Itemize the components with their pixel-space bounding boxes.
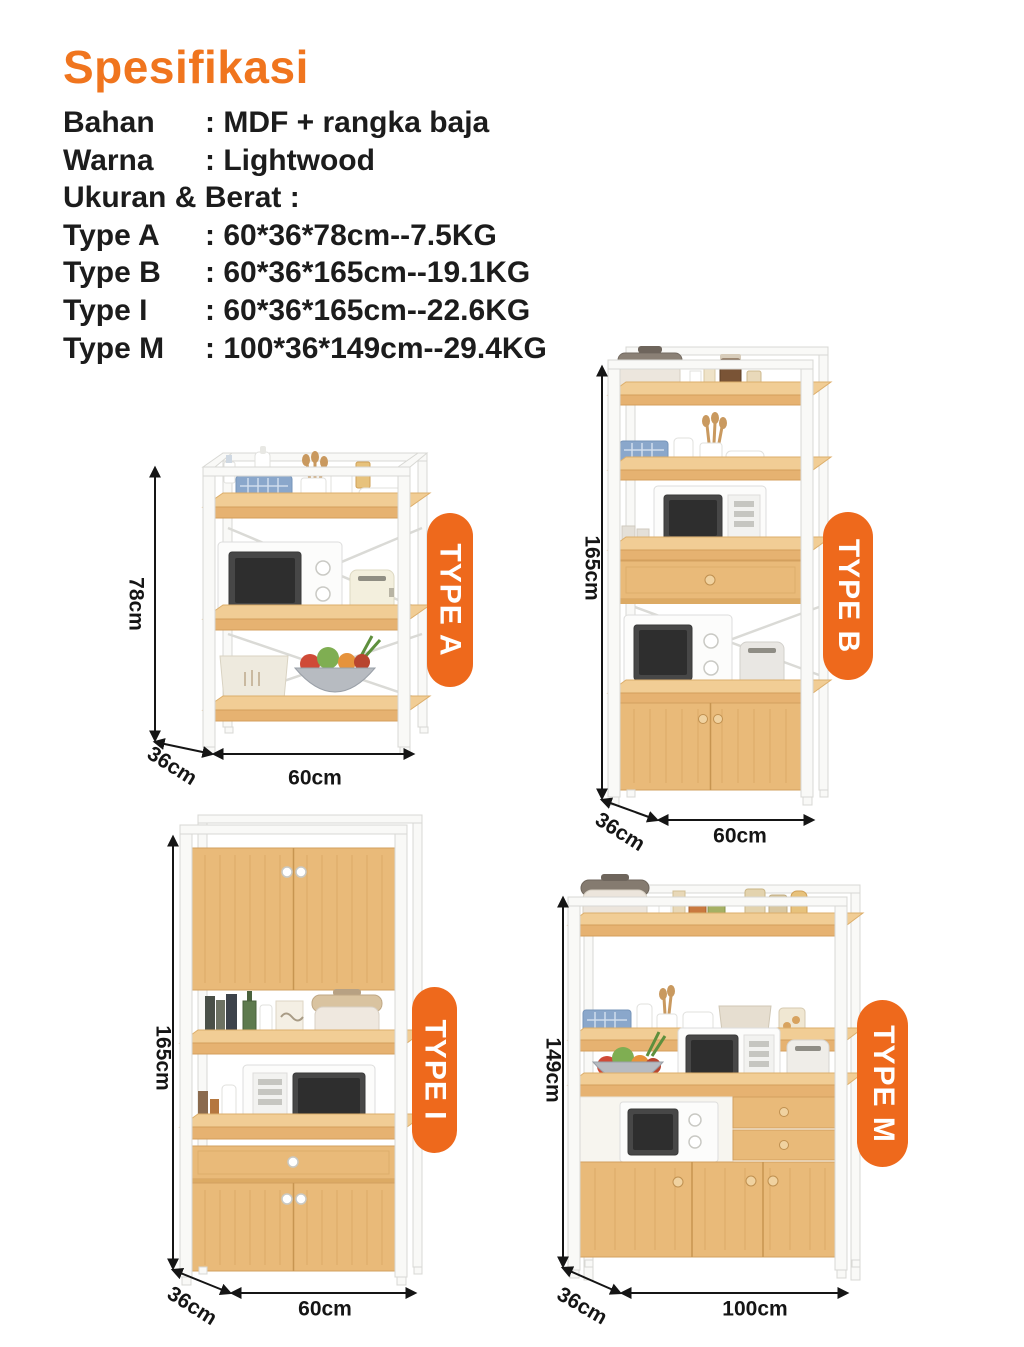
type-a-figure: 78cm 36cm 60cm TYPE A — [100, 420, 520, 800]
depth-dimension-label: 36cm — [553, 1283, 611, 1330]
type-b-figure: 165cm 36cm 60cm TYPE B — [560, 330, 1000, 860]
type-m-illustration: 149cm 36cm 100cm — [540, 860, 1024, 1347]
spec-infographic: Spesifikasi Bahan : MDF + rangka baja Wa… — [0, 0, 1024, 1347]
height-dimension-label: 149cm — [542, 1037, 565, 1102]
height-dimension-label: 165cm — [581, 535, 604, 600]
spec-label: Bahan — [63, 104, 205, 142]
type-b-badge-label: TYPE B — [831, 539, 865, 653]
spec-value: : MDF + rangka baja — [205, 104, 489, 142]
spec-row-type-i: Type I : 60*36*165cm--22.6KG — [63, 292, 547, 330]
type-a-badge-label: TYPE A — [433, 543, 467, 656]
depth-dimension-label: 36cm — [163, 1282, 221, 1330]
page-title: Spesifikasi — [63, 44, 309, 90]
spec-row-ukuran-berat: Ukuran & Berat : — [63, 179, 547, 217]
rack-tall-cabinet — [608, 346, 831, 805]
spec-label: Type M — [63, 330, 205, 368]
spec-value: : 60*36*165cm--22.6KG — [205, 292, 530, 330]
depth-dimension-label: 36cm — [591, 808, 649, 856]
type-i-badge-label: TYPE I — [418, 1019, 452, 1120]
microwave-illustration — [620, 1102, 718, 1162]
spec-row-warna: Warna : Lightwood — [63, 142, 547, 180]
type-m-badge: TYPE M — [857, 1000, 908, 1167]
spec-value: : 60*36*78cm--7.5KG — [205, 217, 497, 255]
spec-row-type-m: Type M : 100*36*149cm--29.4KG — [63, 330, 547, 368]
type-m-figure: 149cm 36cm 100cm TYPE M — [540, 860, 1024, 1347]
upper-cabinet-illustration — [192, 848, 395, 990]
spec-value: : 60*36*165cm--19.1KG — [205, 254, 530, 292]
type-m-badge-label: TYPE M — [866, 1025, 900, 1143]
spec-label: Type A — [63, 217, 205, 255]
width-dimension-label: 60cm — [298, 1297, 352, 1320]
height-dimension-label: 165cm — [152, 1025, 175, 1090]
type-i-figure: 165cm 36cm 60cm TYPE I — [120, 810, 540, 1347]
rack-wide-cabinet — [568, 874, 863, 1280]
width-dimension-label: 60cm — [288, 766, 342, 789]
spec-row-bahan: Bahan : MDF + rangka baja — [63, 104, 547, 142]
spec-label: Warna — [63, 142, 205, 180]
spec-row-type-b: Type B : 60*36*165cm--19.1KG — [63, 254, 547, 292]
microwave-illustration — [624, 615, 732, 690]
spec-list: Bahan : MDF + rangka baja Warna : Lightw… — [63, 104, 547, 367]
spec-value: : 100*36*149cm--29.4KG — [205, 330, 547, 368]
cabinet-illustration — [620, 703, 801, 790]
rack-hutch-cabinet — [180, 815, 425, 1285]
spec-label: Type B — [63, 254, 205, 292]
width-dimension-label: 100cm — [722, 1297, 787, 1320]
drawer-illustration — [192, 1146, 395, 1179]
drawer-illustration — [620, 561, 801, 599]
spec-value: : Lightwood — [205, 142, 375, 180]
lower-cabinet-illustration — [192, 1183, 395, 1271]
type-i-illustration: 165cm 36cm 60cm — [120, 810, 540, 1347]
type-i-badge: TYPE I — [412, 987, 457, 1153]
spec-label: Type I — [63, 292, 205, 330]
spec-label: Ukuran & Berat : — [63, 179, 300, 217]
type-b-badge: TYPE B — [823, 512, 873, 680]
spec-row-type-a: Type A : 60*36*78cm--7.5KG — [63, 217, 547, 255]
height-dimension-label: 78cm — [125, 577, 148, 631]
type-b-illustration: 165cm 36cm 60cm — [560, 330, 1000, 860]
type-a-badge: TYPE A — [427, 513, 473, 687]
lower-cabinet-illustration — [580, 1162, 835, 1257]
width-dimension-label: 60cm — [713, 824, 767, 847]
drawer-illustration — [733, 1097, 835, 1160]
rack-3-tier — [203, 446, 430, 754]
